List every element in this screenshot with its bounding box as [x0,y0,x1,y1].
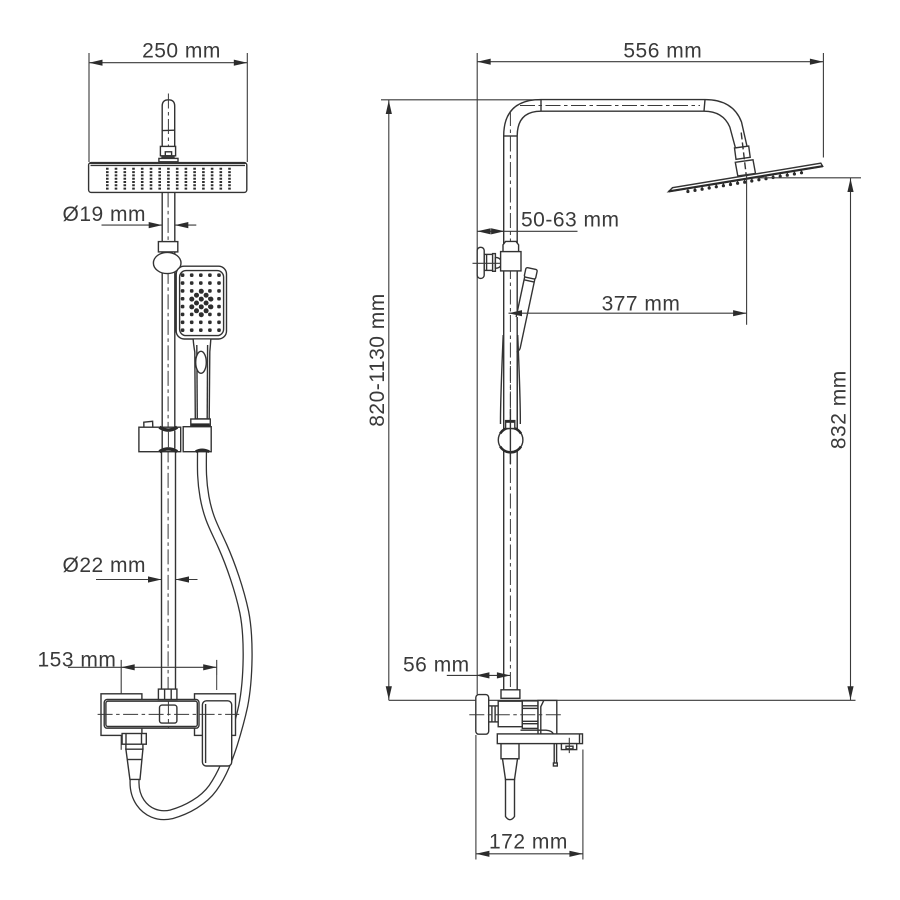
svg-text:56 mm: 56 mm [403,653,470,676]
svg-text:556 mm: 556 mm [623,40,702,63]
svg-text:250 mm: 250 mm [142,40,221,63]
svg-text:Ø19 mm: Ø19 mm [63,203,147,226]
svg-text:Ø22 mm: Ø22 mm [63,554,147,577]
svg-text:153 mm: 153 mm [38,649,117,672]
svg-text:832 mm: 832 mm [828,370,851,449]
svg-text:820-1130 mm: 820-1130 mm [366,293,389,427]
svg-text:377 mm: 377 mm [602,292,681,315]
svg-text:172 mm: 172 mm [489,830,568,853]
svg-text:50-63 mm: 50-63 mm [521,209,620,232]
